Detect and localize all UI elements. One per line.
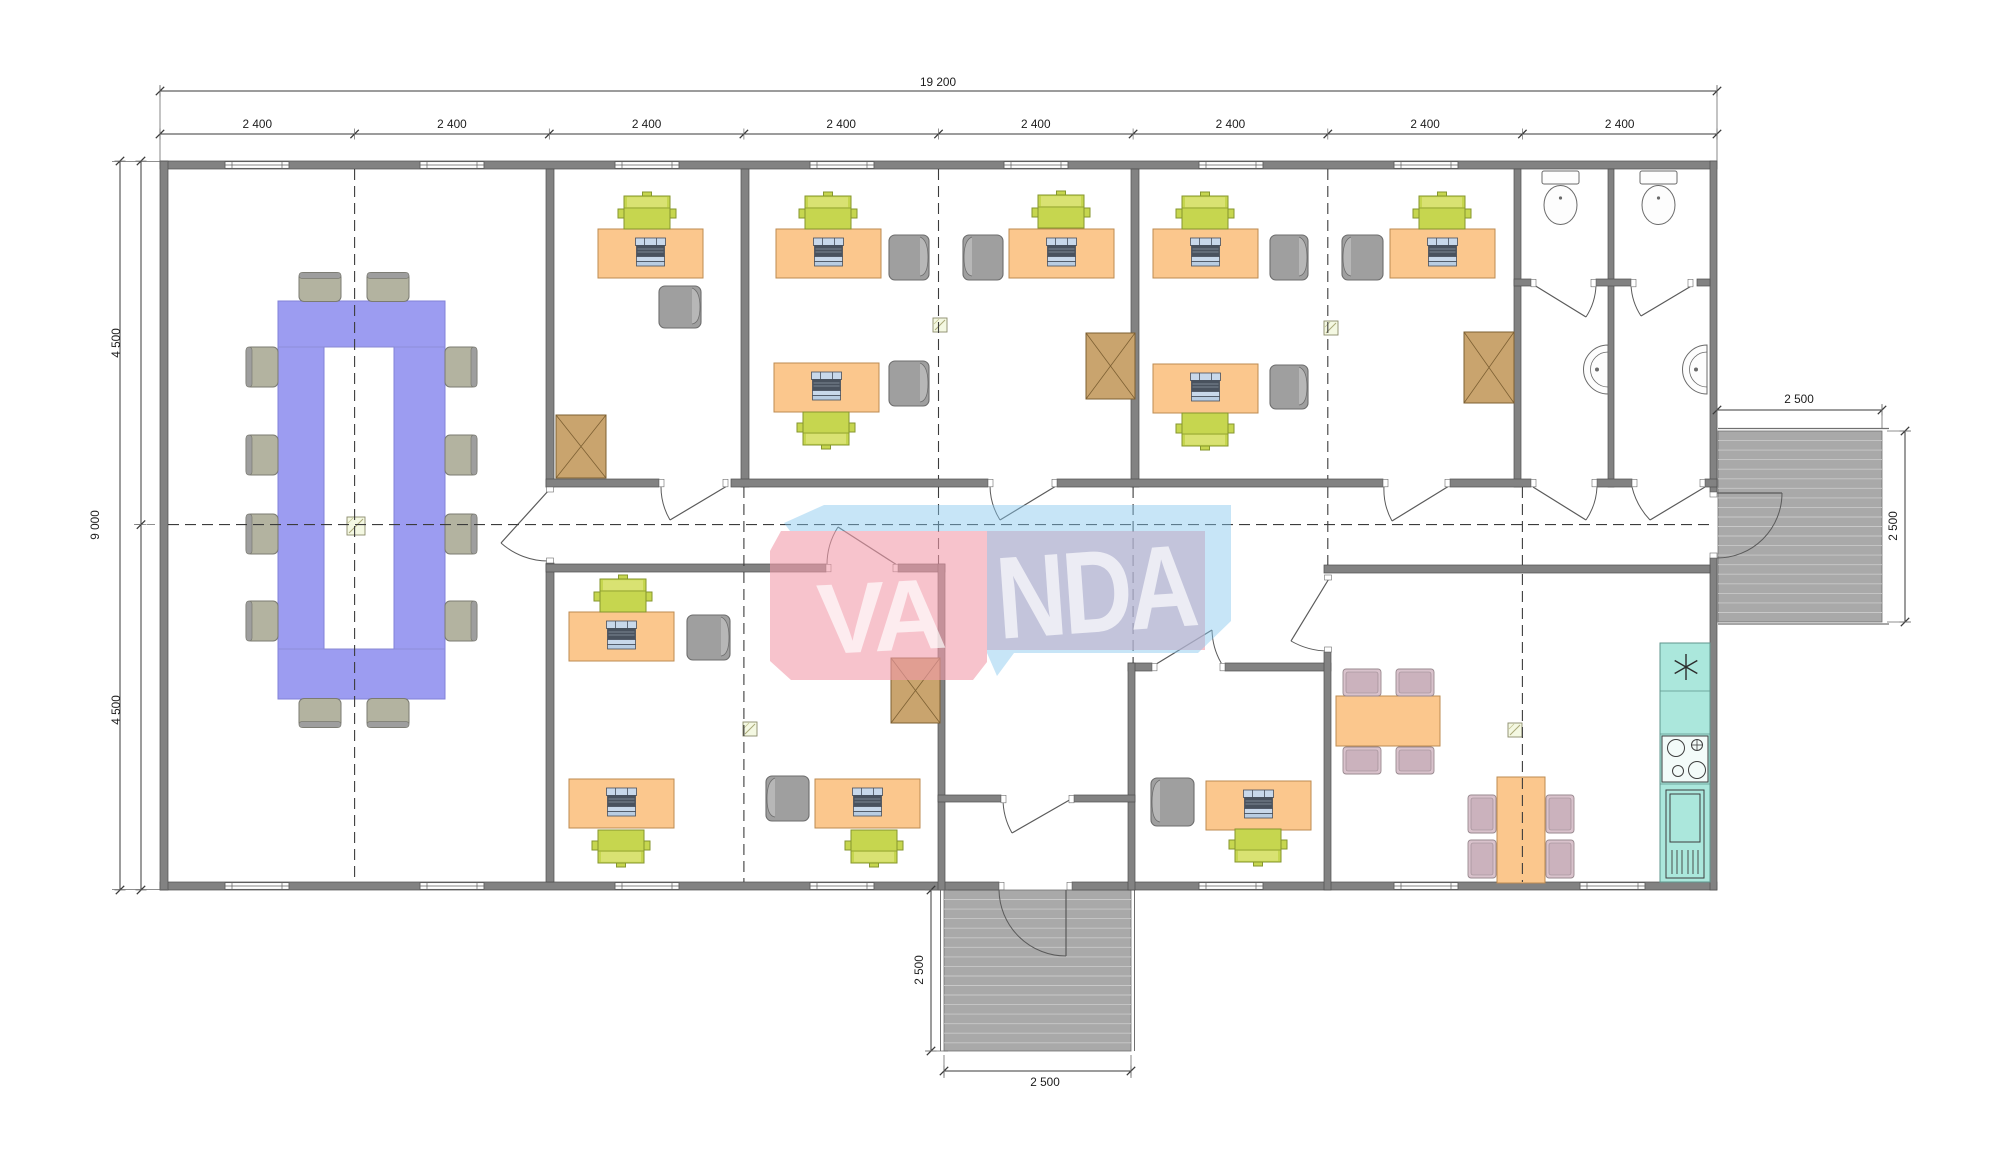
svg-text:2 400: 2 400 bbox=[243, 117, 273, 131]
svg-text:2 500: 2 500 bbox=[1886, 511, 1900, 541]
svg-text:19 200: 19 200 bbox=[920, 75, 957, 89]
svg-text:NDA: NDA bbox=[992, 519, 1201, 664]
svg-text:4 500: 4 500 bbox=[109, 695, 123, 725]
svg-text:2 500: 2 500 bbox=[1784, 392, 1814, 406]
svg-text:2 500: 2 500 bbox=[912, 955, 926, 985]
svg-text:2 400: 2 400 bbox=[1605, 117, 1635, 131]
svg-text:2 400: 2 400 bbox=[1021, 117, 1051, 131]
svg-text:2 400: 2 400 bbox=[1216, 117, 1246, 131]
svg-text:2 400: 2 400 bbox=[1410, 117, 1440, 131]
svg-text:2 400: 2 400 bbox=[437, 117, 467, 131]
svg-text:4 500: 4 500 bbox=[109, 328, 123, 358]
svg-text:2 400: 2 400 bbox=[632, 117, 662, 131]
svg-text:VA: VA bbox=[814, 558, 947, 676]
svg-text:9 000: 9 000 bbox=[88, 510, 102, 540]
svg-text:2 500: 2 500 bbox=[1030, 1075, 1060, 1089]
svg-text:2 400: 2 400 bbox=[826, 117, 856, 131]
